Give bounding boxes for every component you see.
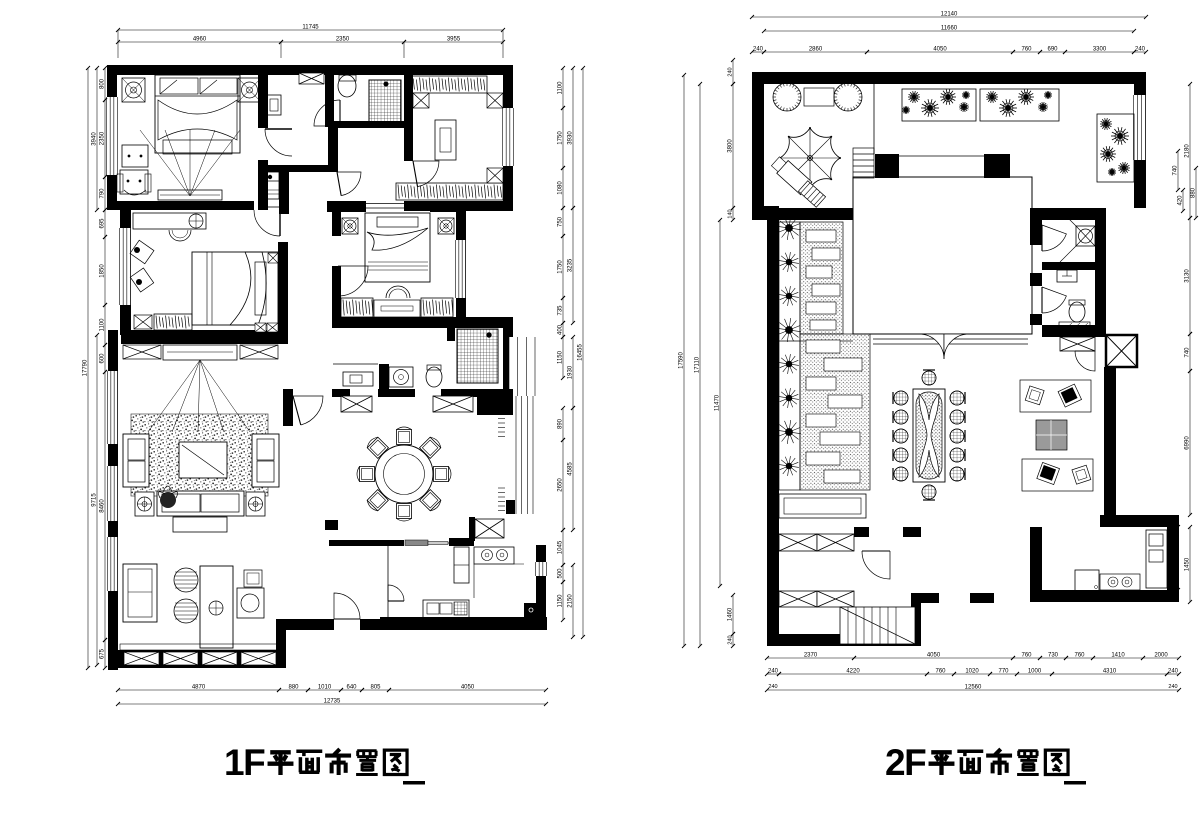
svg-text:4050: 4050: [461, 685, 475, 691]
svg-text:3955: 3955: [447, 37, 461, 43]
svg-text:770: 770: [998, 669, 1009, 675]
svg-text:2650: 2650: [558, 478, 564, 492]
svg-text:12140: 12140: [941, 12, 958, 18]
svg-text:240: 240: [728, 635, 734, 644]
svg-text:760: 760: [1021, 653, 1032, 659]
svg-text:4220: 4220: [846, 669, 860, 675]
svg-text:3940: 3940: [92, 132, 98, 146]
svg-text:9715: 9715: [92, 493, 98, 507]
svg-text:740: 740: [1173, 165, 1179, 176]
svg-text:760: 760: [935, 669, 946, 675]
svg-text:11470: 11470: [715, 394, 721, 411]
svg-text:400: 400: [558, 324, 564, 335]
svg-text:1750: 1750: [558, 131, 564, 145]
svg-text:730: 730: [1048, 653, 1059, 659]
svg-text:8460: 8460: [100, 499, 106, 513]
svg-text:1045: 1045: [558, 540, 564, 554]
svg-text:240: 240: [728, 67, 734, 76]
svg-text:800: 800: [100, 78, 106, 89]
svg-text:640: 640: [346, 685, 357, 691]
svg-text:11660: 11660: [941, 26, 958, 32]
svg-text:2350: 2350: [336, 37, 350, 43]
svg-text:600: 600: [100, 353, 106, 364]
svg-text:760: 760: [1074, 653, 1085, 659]
svg-text:750: 750: [558, 216, 564, 227]
svg-text:17590: 17590: [679, 351, 685, 368]
svg-text:1850: 1850: [100, 264, 106, 278]
svg-text:2860: 2860: [809, 47, 823, 53]
svg-text:760: 760: [1021, 47, 1032, 53]
svg-text:3800: 3800: [728, 139, 734, 153]
svg-text:1460: 1460: [728, 607, 734, 621]
svg-text:1410: 1410: [1111, 653, 1125, 659]
svg-text:3130: 3130: [1185, 269, 1191, 283]
svg-text:4960: 4960: [193, 37, 207, 43]
svg-text:1010: 1010: [318, 685, 332, 691]
svg-text:695: 695: [100, 218, 106, 229]
svg-text:140: 140: [728, 209, 734, 218]
svg-text:12735: 12735: [324, 699, 341, 705]
svg-text:240: 240: [1135, 47, 1146, 53]
svg-text:12560: 12560: [965, 685, 982, 691]
svg-text:690: 690: [1047, 47, 1058, 53]
svg-text:1100: 1100: [558, 81, 564, 95]
svg-text:240: 240: [768, 669, 779, 675]
svg-text:805: 805: [370, 685, 381, 691]
svg-text:2180: 2180: [1185, 144, 1191, 158]
svg-text:2150: 2150: [568, 594, 574, 608]
svg-text:500: 500: [558, 568, 564, 579]
svg-text:880: 880: [1191, 187, 1197, 198]
svg-text:240: 240: [768, 684, 777, 690]
svg-text:880: 880: [288, 685, 299, 691]
svg-text:1100: 1100: [100, 318, 106, 332]
svg-text:1000: 1000: [1028, 669, 1042, 675]
svg-text:2F: 2F: [885, 742, 926, 783]
svg-text:4050: 4050: [933, 47, 947, 53]
svg-text:17110: 17110: [695, 356, 701, 373]
svg-text:4310: 4310: [1103, 669, 1117, 675]
svg-text:240: 240: [1168, 669, 1179, 675]
svg-text:735: 735: [558, 305, 564, 316]
svg-text:3235: 3235: [568, 258, 574, 272]
svg-text:420: 420: [1178, 195, 1184, 206]
svg-text:3300: 3300: [1093, 47, 1107, 53]
svg-text:790: 790: [100, 188, 106, 199]
svg-text:1750: 1750: [558, 260, 564, 274]
svg-text:1020: 1020: [965, 669, 979, 675]
svg-text:675: 675: [100, 648, 106, 659]
svg-text:890: 890: [558, 418, 564, 429]
svg-text:4050: 4050: [927, 653, 941, 659]
svg-text:1080: 1080: [558, 181, 564, 195]
svg-text:1F: 1F: [224, 742, 265, 783]
svg-text:240: 240: [1168, 684, 1177, 690]
svg-text:4870: 4870: [192, 685, 206, 691]
svg-text:1930: 1930: [568, 365, 574, 379]
svg-text:17790: 17790: [83, 359, 89, 376]
svg-text:3930: 3930: [568, 131, 574, 145]
svg-text:4585: 4585: [568, 462, 574, 476]
svg-text:1150: 1150: [558, 594, 564, 608]
svg-text:2350: 2350: [100, 131, 106, 145]
svg-text:1150: 1150: [558, 350, 564, 364]
svg-text:740: 740: [1185, 347, 1191, 358]
svg-text:240: 240: [753, 47, 764, 53]
svg-text:1580: 1580: [1173, 551, 1179, 565]
svg-text:2370: 2370: [804, 653, 818, 659]
svg-text:11745: 11745: [302, 25, 319, 31]
svg-text:2000: 2000: [1154, 653, 1168, 659]
svg-text:1450: 1450: [1185, 557, 1191, 571]
svg-text:16455: 16455: [578, 343, 584, 360]
svg-text:6990: 6990: [1185, 436, 1191, 450]
